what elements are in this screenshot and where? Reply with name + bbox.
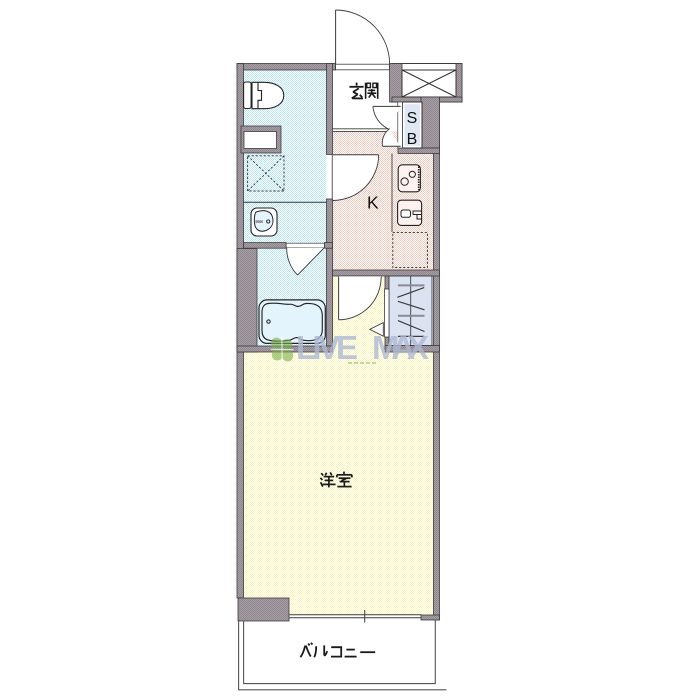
- svg-text:LIVE: LIVE: [296, 329, 358, 366]
- svg-text:B: B: [407, 131, 418, 148]
- svg-text:S: S: [407, 110, 418, 127]
- svg-text:K: K: [367, 193, 379, 213]
- svg-text:MAX: MAX: [372, 329, 429, 366]
